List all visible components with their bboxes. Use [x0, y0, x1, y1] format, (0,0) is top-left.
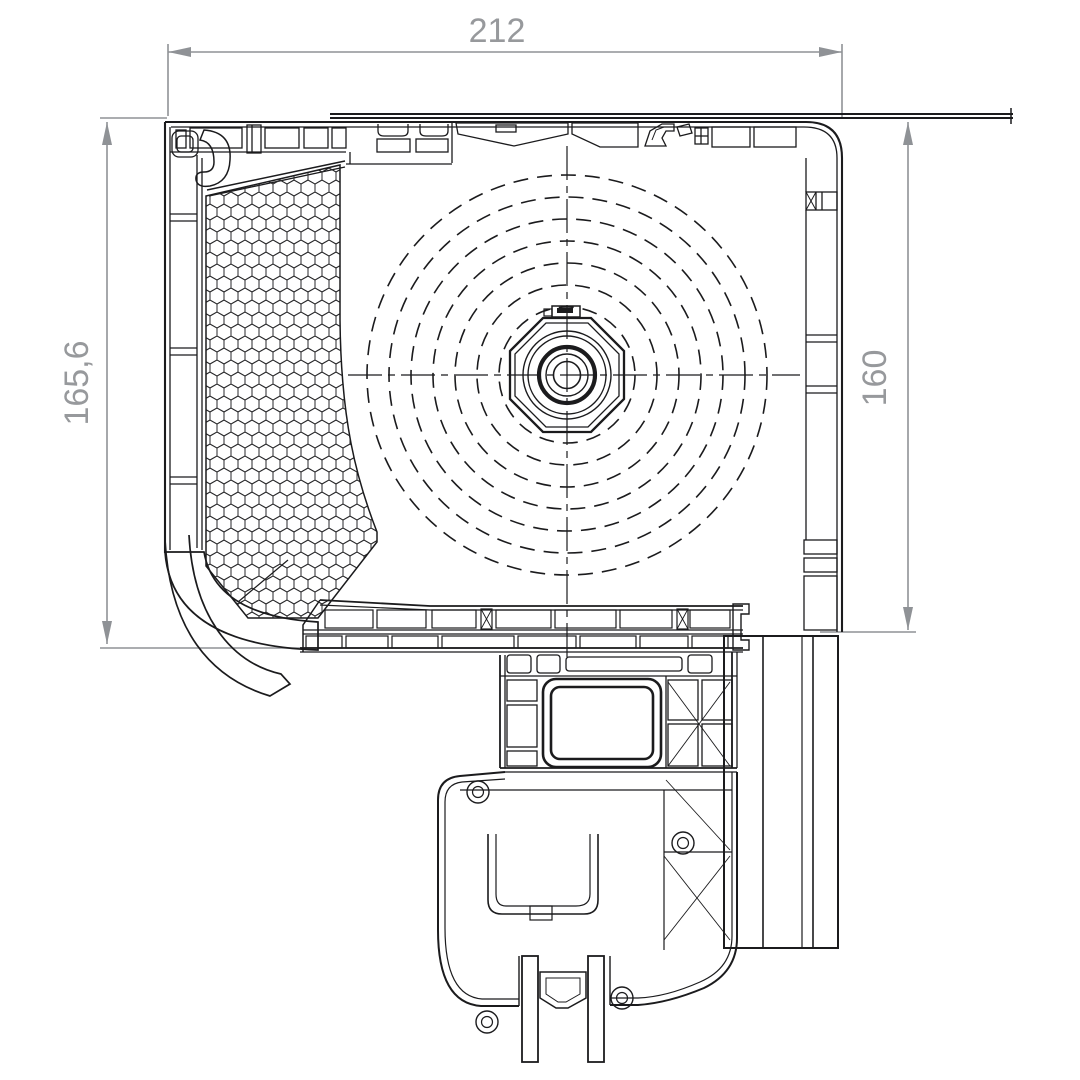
steel-reinforcement-chamber: [543, 679, 661, 767]
dimension-height-left-label: 165,6: [58, 340, 96, 425]
insulation-honeycomb: [206, 165, 377, 618]
guide-rail: [724, 636, 838, 948]
arrow-up-icon: [903, 122, 913, 145]
screw-icon: [467, 781, 489, 803]
glass-pane: [588, 956, 604, 1062]
drawing-canvas: 212 165,6 160: [0, 0, 1080, 1080]
box-bottom-lid: [300, 600, 749, 652]
arrow-left-icon: [168, 47, 191, 57]
dimension-width-label: 212: [469, 12, 526, 50]
dimension-inner-height: 160: [820, 122, 916, 632]
window-frame-profile: [500, 652, 737, 772]
arrow-down-icon: [903, 607, 913, 630]
glass-pane: [522, 956, 538, 1062]
roller-shutter-section-drawing: 212 165,6 160: [0, 0, 1080, 1080]
shutter-coil: [348, 146, 800, 658]
box-top-band: [170, 123, 796, 164]
dimension-overall-width: 212: [168, 12, 842, 117]
box-right-wall: [804, 158, 837, 630]
screw-icon: [672, 832, 694, 854]
arrow-up-icon: [102, 122, 112, 145]
dimension-height-right-label: 160: [856, 350, 894, 407]
arrow-down-icon: [102, 621, 112, 644]
glazing-spacer: [540, 972, 586, 1008]
lid-end-cap: [733, 604, 749, 650]
arrow-right-icon: [819, 47, 842, 57]
screw-icon: [476, 1011, 498, 1033]
glazing-panes: [522, 956, 604, 1062]
